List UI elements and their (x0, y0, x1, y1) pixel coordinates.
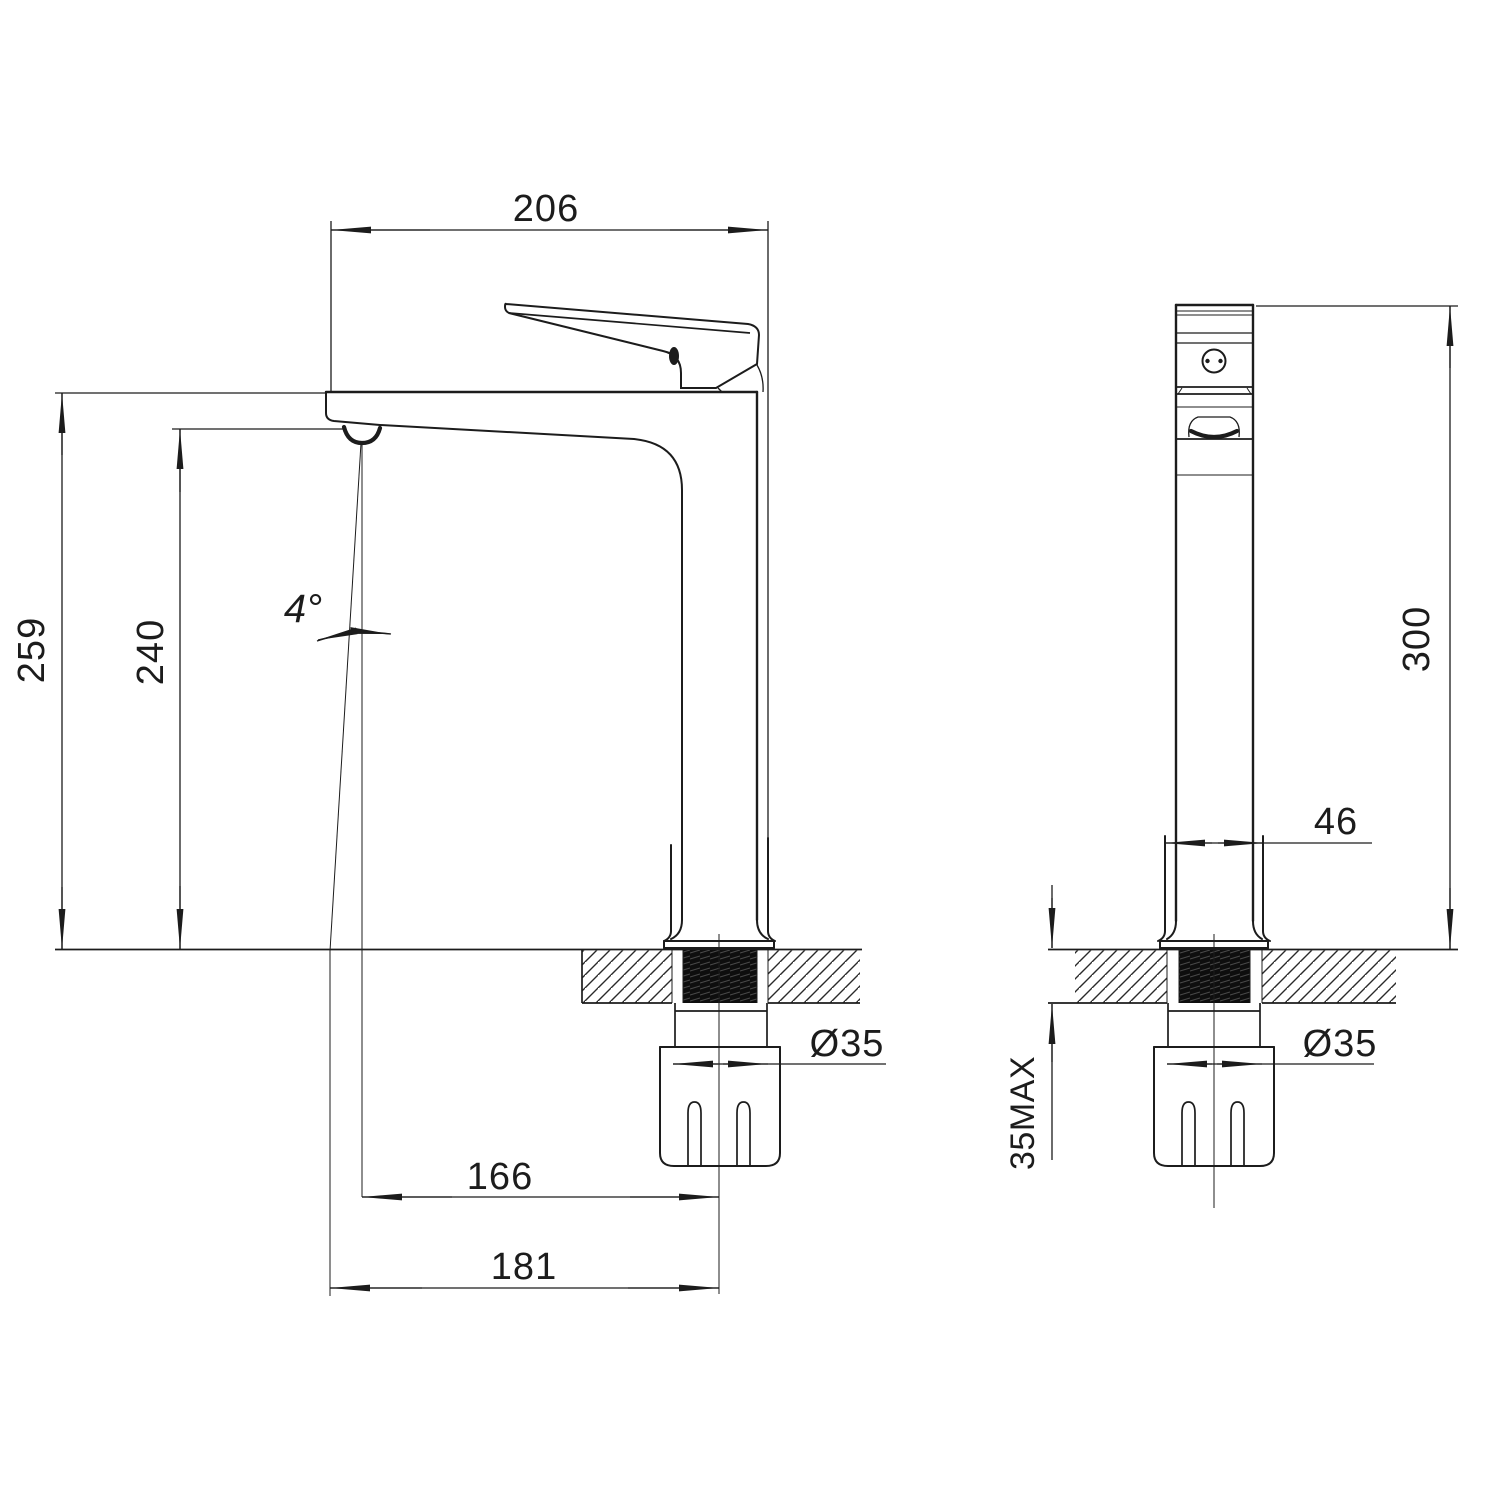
dim-46-label: 46 (1314, 801, 1358, 843)
dim-300-label: 300 (1396, 606, 1438, 672)
dim-300: 300 (1256, 306, 1458, 949)
faucet-body-front (326, 392, 775, 948)
dim-hole-diameter-side: Ø35 (1167, 1023, 1377, 1065)
countertop-hatch (1262, 951, 1396, 1003)
dim-206: 206 (331, 188, 768, 838)
dim-181-label: 181 (491, 1246, 557, 1288)
dim-206-label: 206 (513, 188, 579, 230)
aerator-side (1191, 431, 1237, 437)
countertop-hatch (1075, 951, 1167, 1003)
aerator-front (344, 427, 380, 443)
dim-angle-4deg: 4° (284, 587, 391, 641)
dim-hole-diameter-side-label: Ø35 (1303, 1023, 1378, 1065)
dim-hole-diameter-front-label: Ø35 (810, 1023, 885, 1065)
dim-35max: 35MAX (1004, 885, 1052, 1170)
handle-lever (505, 304, 763, 392)
drawing-page: 206 (0, 0, 1500, 1500)
side-view: 46 (1004, 305, 1458, 1208)
dim-240-label: 240 (130, 619, 172, 685)
countertop-front (55, 949, 862, 1003)
dim-259-label: 259 (11, 617, 53, 683)
front-view: 206 (11, 188, 886, 1296)
water-stream (330, 443, 362, 1296)
countertop-hatch (768, 951, 860, 1003)
dim-angle-label: 4° (284, 587, 322, 631)
countertop-side (1048, 950, 1458, 1004)
countertop-hatch (582, 951, 672, 1003)
dim-240: 240 (130, 429, 344, 949)
drawing-canvas: 206 (0, 0, 1500, 1500)
handle-pivot-pin (669, 347, 679, 365)
thread-section-front (683, 950, 757, 1003)
dim-181: 181 (330, 1246, 719, 1288)
faucet-body-side (1158, 305, 1270, 948)
dim-166: 166 (362, 1156, 719, 1198)
dim-46: 46 (1165, 801, 1372, 843)
dim-166-label: 166 (467, 1156, 533, 1198)
dim-35max-label: 35MAX (1004, 1056, 1042, 1170)
mounting-nut-front (660, 1003, 780, 1166)
